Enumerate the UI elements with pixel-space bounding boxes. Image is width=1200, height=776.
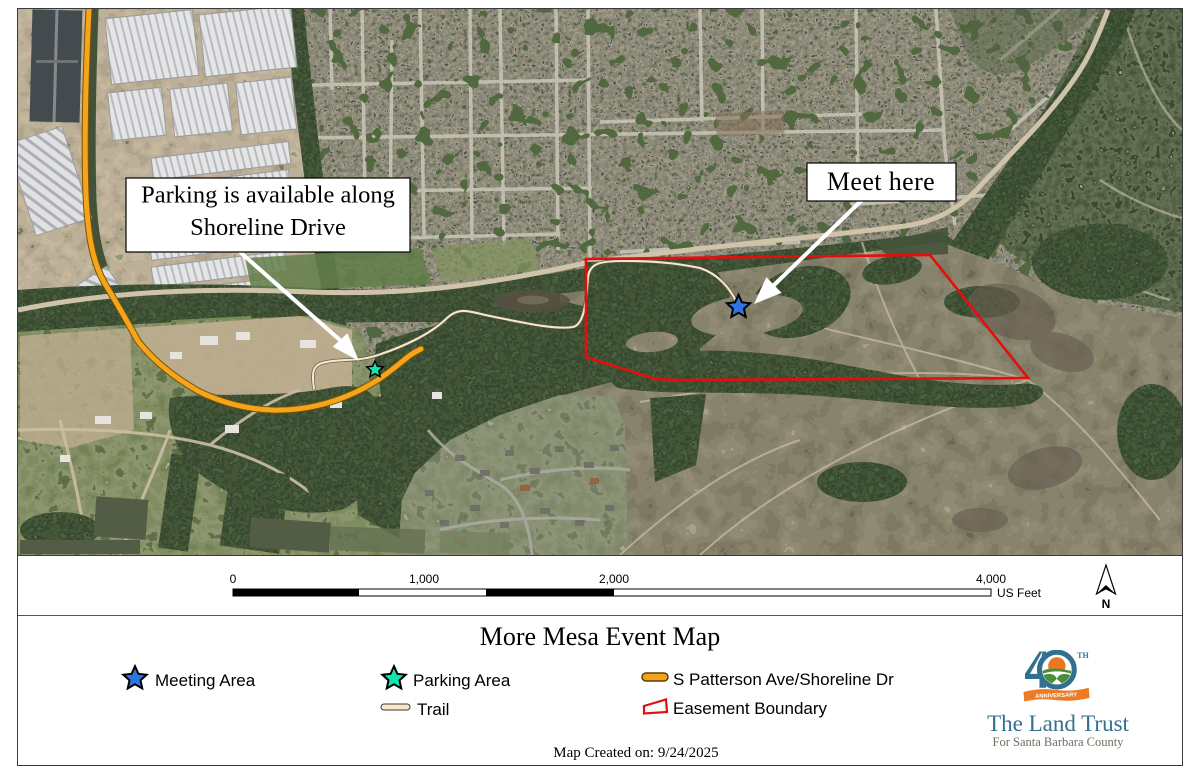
svg-text:TH: TH	[1077, 651, 1089, 660]
svg-text:N: N	[1102, 597, 1111, 611]
svg-text:US Feet: US Feet	[997, 586, 1042, 600]
svg-text:4,000: 4,000	[976, 572, 1006, 586]
svg-text:1,000: 1,000	[409, 572, 439, 586]
svg-text:Parking is available along: Parking is available along	[141, 182, 395, 209]
svg-text:Shoreline Drive: Shoreline Drive	[190, 214, 346, 241]
svg-text:2,000: 2,000	[599, 572, 629, 586]
svg-text:Meet here: Meet here	[827, 167, 935, 196]
svg-text:0: 0	[230, 572, 237, 586]
